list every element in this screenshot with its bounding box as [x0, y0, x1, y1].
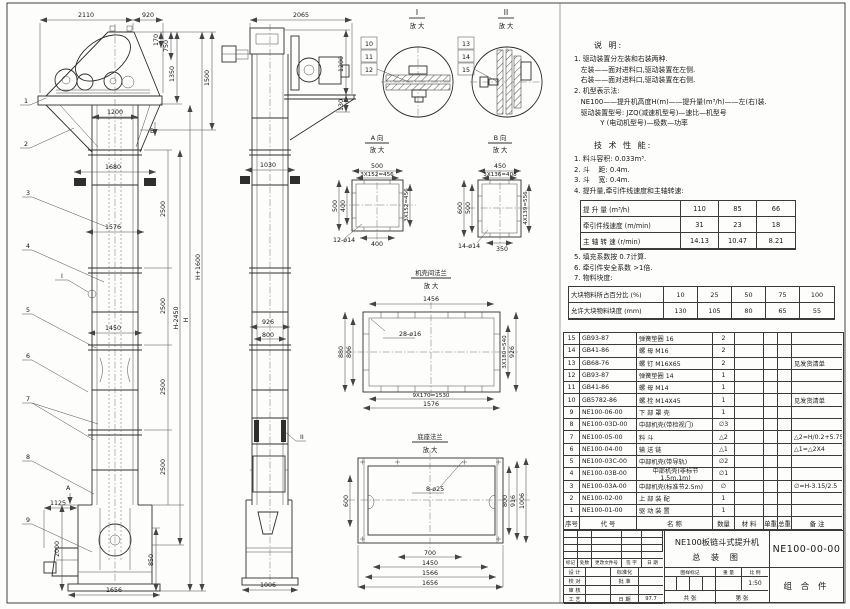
tech-items-b: 5. 填充系数按 0.7计算.6. 牵引件安全系数 >1倍.7. 物料块度: — [574, 252, 652, 284]
table-row: 11 GB41-86 螺 母 M14 1 — [564, 382, 843, 394]
holes-callout: 28-ø16 — [399, 331, 421, 338]
part-qty: 1 — [713, 505, 735, 517]
part-remark — [792, 456, 842, 468]
value-cell: 50 — [732, 287, 766, 303]
sign-value — [639, 577, 663, 586]
sheet-number: 第 张 — [716, 591, 768, 604]
part-total-weight — [778, 358, 792, 370]
tech-item: 4. 提升量,牵引件线速度和主轴转速: — [574, 186, 684, 197]
dim-label: 1500 — [204, 70, 211, 86]
sign-value — [586, 568, 611, 577]
stamp-boxes: 1:50 — [664, 577, 769, 591]
notes-section: 1. 驱动装置分左装和右装两种. 左装——面对进料口,驱动装置在左侧. 右装——… — [574, 54, 767, 129]
dim-label: 850 — [148, 554, 155, 566]
col-header: 代 号 — [580, 517, 637, 530]
part-seq: 4 — [564, 468, 580, 480]
part-material — [735, 419, 764, 431]
value-cell: 130 — [664, 303, 698, 319]
rev-col-header: 标记 — [564, 559, 578, 568]
part-seq: 12 — [564, 370, 580, 382]
part-code: GB93-87 — [580, 333, 637, 345]
value-cell: 75 — [766, 287, 800, 303]
balloon: 15 — [462, 67, 470, 74]
part-material — [735, 382, 764, 394]
tech-items-a: 1. 料斗容积: 0.033m³.2. 斗 距: 0.4m.3. 斗 宽: 0.… — [574, 154, 684, 197]
part-qty: 1 — [713, 370, 735, 382]
dim-label: 2000 — [54, 541, 61, 557]
part-seq: 2 — [564, 493, 580, 505]
note-line: NE100——提升机高度H(m)——提升量(m³/h)——左(右)装. — [574, 97, 767, 108]
col-header: 名 称 — [637, 517, 713, 530]
part-name: 弹簧垫圈 16 — [637, 333, 713, 345]
view-a: A 向 放 大 500 3X152=456 500 400 3X152=456 … — [332, 133, 416, 248]
stamp-label: 比 例 — [742, 568, 768, 577]
part-name: 中部机壳(标准节2.5m) — [637, 481, 713, 493]
tech-item: 5. 填充系数按 0.7计算. — [574, 252, 652, 263]
detail-subtitle: 放 大 — [410, 21, 425, 30]
part-total-weight — [778, 407, 792, 419]
table-row: 提 升 量 (m³/h) 110 85 66 — [581, 201, 795, 217]
dim-label: 1125 — [50, 500, 66, 507]
dim-label: 2500 — [160, 201, 167, 217]
value-cell: 105 — [698, 303, 732, 319]
dim-label: 3X136=408 — [483, 172, 517, 178]
dim-label: 4X139=556 — [523, 191, 529, 225]
row-label: 允许大块物料块度 (mm) — [569, 303, 664, 319]
note-line: 2. 机型表示法: — [574, 86, 767, 97]
dim-label: 916 — [510, 495, 517, 507]
sheet-total: 共 张 — [664, 591, 716, 604]
detail-i: I 放 大 10 11 12 — [361, 8, 455, 118]
sign-value — [586, 595, 611, 604]
part-unit-weight — [764, 456, 778, 468]
part-remark: ∅=H-3.15/2.5 — [792, 481, 842, 493]
part-total-weight — [778, 505, 792, 517]
part-qty: ∅1 — [713, 468, 735, 480]
col-header: 备 注 — [792, 517, 842, 530]
balloon: 10 — [365, 41, 373, 48]
dim-label: 2065 — [293, 12, 309, 19]
sign-label: 审 核 — [564, 586, 586, 595]
part-material — [735, 456, 764, 468]
part-code: NE100-05-00 — [580, 431, 637, 443]
part-name: 弹簧垫圈 14 — [637, 370, 713, 382]
dim-label: 1656 — [422, 580, 438, 587]
part-unit-weight — [764, 382, 778, 394]
part-qty: 2 — [713, 358, 735, 370]
dim-label: 350 — [496, 246, 508, 253]
value-cell: 110 — [681, 201, 719, 217]
row-label: 牵引件线速度 (m/min) — [581, 217, 681, 233]
part-material — [735, 370, 764, 382]
part-remark: 见发货清单 — [792, 394, 842, 406]
table-row: 7 NE100-05-00 料 斗 △2 △2=H/0.2+5.75 — [564, 431, 843, 443]
parts-rows: 15 GB93-87 弹簧垫圈 16 2 14 GB41-86 螺 母 M16 … — [564, 333, 843, 517]
part-qty: ∅3 — [713, 419, 735, 431]
sign-label: 校 对 — [564, 577, 586, 586]
drawing-number: NE100-00-00 — [769, 531, 843, 568]
sign-label: 工 艺 — [564, 595, 586, 604]
part-remark — [792, 493, 842, 505]
balloon: 6 — [26, 353, 30, 360]
part-code: NE100-03C-00 — [580, 456, 637, 468]
dim-label: 1200 — [338, 56, 345, 72]
part-remark — [792, 407, 842, 419]
col-header: 单重 — [764, 517, 778, 530]
part-qty: △2 — [713, 431, 735, 443]
part-total-weight — [778, 431, 792, 443]
sign-value — [586, 577, 611, 586]
scale-value: 1:50 — [742, 577, 768, 591]
part-code: NE100-06-00 — [580, 407, 637, 419]
base-flange-detail: 底座法兰 放 大 600 800 916 1006 700 1450 1566 … — [343, 432, 532, 587]
balloon: 2 — [24, 141, 28, 148]
value-cell: 8.21 — [757, 233, 795, 249]
sign-value — [586, 586, 611, 595]
part-qty: 1 — [713, 493, 735, 505]
note-line: 右装——面对进料口,驱动装置在右侧. — [574, 75, 767, 86]
value-cell: 14.13 — [681, 233, 719, 249]
dim-label: 800 — [502, 495, 509, 507]
col-header: 总重 — [778, 517, 792, 530]
dim-label: 806 — [346, 346, 353, 358]
sign-label: 日 期 — [611, 595, 639, 604]
balloon: 3 — [26, 190, 30, 197]
dim-label: H-2450 — [173, 306, 180, 329]
sign-label: 标准化 — [611, 568, 639, 577]
part-remark — [792, 345, 842, 357]
sign-label — [611, 586, 639, 595]
tech-item: 6. 牵引件安全系数 >1倍. — [574, 263, 652, 274]
sheet-count: 共 张 第 张 — [664, 591, 769, 604]
dim-label: 1006 — [519, 493, 526, 509]
stamp-label: 重 量 — [716, 568, 742, 577]
part-code: NE100-03D-00 — [580, 419, 637, 431]
dim-label: 3X152=456 — [360, 172, 394, 178]
part-total-weight — [778, 444, 792, 456]
part-seq: 9 — [564, 407, 580, 419]
part-total-weight — [778, 493, 792, 505]
table-row: 10 GB5782-86 螺 栓 M14X45 1 见发货清单 — [564, 394, 843, 406]
dim-label: 1450 — [105, 325, 121, 332]
dim-label: 600 — [343, 495, 350, 507]
part-material — [735, 358, 764, 370]
part-name: 下 部 罩 壳 — [637, 407, 713, 419]
table-row: 2 NE100-02-00 上 部 装 配 1 — [564, 493, 843, 505]
part-seq: 14 — [564, 345, 580, 357]
dim-label: 2500 — [160, 379, 167, 395]
row-label: 大块物料所占百分比 (%) — [569, 287, 664, 303]
part-code: NE100-02-00 — [580, 493, 637, 505]
notes-title: 说 明: — [594, 40, 623, 51]
part-remark — [792, 468, 842, 480]
table-row: 8 NE100-03D-00 中部机壳(带检视门) ∅3 — [564, 419, 843, 431]
tech-item: 7. 物料块度: — [574, 273, 652, 284]
front-view-dimensions: 2110 920 170 750 1350 1500 1200 B 1680 1… — [40, 12, 216, 595]
part-material — [735, 444, 764, 456]
balloon: 1 — [24, 98, 28, 105]
col-header: 序号 — [564, 517, 580, 530]
part-material — [735, 468, 764, 480]
detail-title: II — [504, 8, 508, 17]
dim-label: 920 — [142, 12, 154, 19]
part-remark: △1=△2X4 — [792, 444, 842, 456]
dim-label: 800 — [262, 332, 274, 339]
parts-list: 15 GB93-87 弹簧垫圈 16 2 14 GB41-86 螺 母 M16 … — [563, 332, 844, 531]
note-line: 1. 驱动装置分左装和右装两种. — [574, 54, 767, 65]
part-name: 中部机壳(带检视门) — [637, 419, 713, 431]
part-unit-weight — [764, 370, 778, 382]
dim-label: 170 — [153, 34, 160, 46]
view-subtitle: 放 大 — [370, 145, 385, 154]
note-line: Y (电动机型号)—极数—功率 — [574, 118, 767, 129]
dim-label: 880 — [338, 346, 345, 358]
part-code: GB41-86 — [580, 382, 637, 394]
rev-col-header: 日 期 — [642, 559, 663, 568]
value-cell: 55 — [800, 303, 834, 319]
dim-label: 3X152=456 — [404, 188, 410, 222]
table-row: 大块物料所占百分比 (%) 10 25 50 75 100 — [569, 287, 834, 303]
dim-label: 1030 — [260, 162, 276, 169]
dim-label: 750 — [163, 40, 170, 52]
performance-table: 提 升 量 (m³/h) 110 85 66 牵引件线速度 (m/min) 31… — [580, 200, 796, 250]
part-unit-weight — [764, 444, 778, 456]
detail-ii: II 放 大 13 14 15 — [458, 8, 544, 118]
part-unit-weight — [764, 419, 778, 431]
balloon: 14 — [462, 54, 470, 61]
holes-callout: 12-ø14 — [333, 237, 355, 244]
part-remark: 见发货清单 — [792, 358, 842, 370]
part-unit-weight — [764, 431, 778, 443]
dim-label: 2110 — [78, 12, 94, 19]
rev-col-header: 签 字 — [622, 559, 642, 568]
part-material — [735, 481, 764, 493]
side-view — [222, 24, 356, 585]
view-subtitle: 放 大 — [424, 281, 439, 290]
drawing-title: NE100板链斗式提升机 总 装 图 — [664, 531, 769, 568]
part-total-weight — [778, 419, 792, 431]
part-code: GB93-87 — [580, 370, 637, 382]
drawing-title-line2: 总 装 图 — [692, 551, 742, 563]
table-row: 15 GB93-87 弹簧垫圈 16 2 — [564, 333, 843, 345]
value-cell: 31 — [681, 217, 719, 233]
part-material — [735, 345, 764, 357]
signature-area: 设 计 标准化 校 对 批 准 审 核 — [564, 568, 664, 604]
part-total-weight — [778, 394, 792, 406]
part-qty: 2 — [713, 333, 735, 345]
revision-area: 标记 处数 更改文件号 签 字 日 期 — [564, 531, 664, 568]
part-qty: ∅2 — [713, 456, 735, 468]
part-total-weight — [778, 370, 792, 382]
tech-item: 3. 斗 宽: 0.4m. — [574, 175, 684, 186]
dim-label: 500 — [332, 200, 339, 212]
dim-label: 926 — [262, 319, 274, 326]
part-unit-weight — [764, 333, 778, 345]
dim-label: 1006 — [260, 582, 276, 589]
part-code: GB5782-86 — [580, 394, 637, 406]
dim-label: 3X180=540 — [502, 335, 508, 369]
value-cell: 25 — [698, 287, 732, 303]
rev-col-header: 处数 — [578, 559, 592, 568]
tech-title: 技 术 性 能: — [594, 140, 652, 151]
value-cell: 10 — [664, 287, 698, 303]
part-name: 螺 母 M16 — [637, 345, 713, 357]
value-cell: 66 — [757, 201, 795, 217]
part-total-weight — [778, 382, 792, 394]
stamp-label: 图样标记 — [664, 568, 716, 577]
table-row: 5 NE100-03C-00 中部机壳(带导轨) ∅2 — [564, 456, 843, 468]
part-seq: 13 — [564, 358, 580, 370]
table-row: 12 GB93-87 弹簧垫圈 14 1 — [564, 370, 843, 382]
dim-label: 450 — [494, 163, 506, 170]
part-qty: ∅ — [713, 481, 735, 493]
part-name: 中部机壳(带导轨) — [637, 456, 713, 468]
rev-col-header: 更改文件号 — [592, 559, 622, 568]
part-unit-weight — [764, 394, 778, 406]
dim-label: 1656 — [106, 587, 122, 594]
view-title: 底座法兰 — [417, 432, 442, 441]
detail-i-callout: I — [61, 273, 63, 280]
front-view-balloons: 1 2 3 4 5 6 7 8 9 — [20, 98, 107, 552]
part-code: NE100-01-00 — [580, 505, 637, 517]
drawing-title-line1: NE100板链斗式提升机 — [675, 536, 759, 548]
stamp-header: 图样标记 重 量 比 例 — [664, 568, 769, 577]
dim-label: 1576 — [423, 401, 439, 408]
table-row: 4 NE100-03B-00 中部机壳(非标节1.5m,1m) ∅1 — [564, 468, 843, 480]
part-total-weight — [778, 481, 792, 493]
value-cell: 18 — [757, 217, 795, 233]
detail-ii-callout: II — [300, 434, 304, 441]
part-material — [735, 407, 764, 419]
view-title: 机壳间法兰 — [415, 268, 446, 277]
tech-item: 2. 斗 距: 0.4m. — [574, 165, 684, 176]
table-row: 6 NE100-04-00 输 送 链 △1 △1=△2X4 — [564, 444, 843, 456]
part-code: GB41-86 — [580, 345, 637, 357]
value-cell: 100 — [800, 287, 834, 303]
signature-row: 设 计 标准化 — [564, 568, 664, 577]
title-block: 标记 处数 更改文件号 签 字 日 期 设 计 标准化 校 对 — [563, 530, 844, 603]
value-cell: 85 — [719, 201, 757, 217]
value-cell: 65 — [766, 303, 800, 319]
part-remark — [792, 382, 842, 394]
note-line: 左装——面对进料口,驱动装置在左侧. — [574, 65, 767, 76]
signature-row: 审 核 — [564, 586, 664, 595]
part-code: NE100-03A-00 — [580, 481, 637, 493]
dim-label: 1450 — [422, 560, 438, 567]
part-qty: 2 — [713, 345, 735, 357]
view-title: A 向 — [371, 133, 384, 142]
part-name: 上 部 装 配 — [637, 493, 713, 505]
part-seq: 6 — [564, 444, 580, 456]
view-a-arrow-label: A — [66, 485, 71, 492]
part-material — [735, 431, 764, 443]
part-code: GB68-76 — [580, 358, 637, 370]
holes-callout: 8-ø25 — [426, 486, 444, 493]
value-cell: 23 — [719, 217, 757, 233]
part-material — [735, 333, 764, 345]
value-cell: 80 — [732, 303, 766, 319]
balloon: 8 — [26, 454, 30, 461]
dim-label: 600 — [457, 202, 464, 214]
dim-label: H — [183, 317, 190, 322]
part-unit-weight — [764, 407, 778, 419]
balloon: 12 — [365, 67, 373, 74]
part-code: NE100-03B-00 — [580, 468, 637, 480]
table-row: 13 GB68-76 螺 钉 M16X65 2 见发货清单 — [564, 358, 843, 370]
table-row: 1 NE100-01-00 驱 动 装 置 1 — [564, 505, 843, 517]
part-unit-weight — [764, 505, 778, 517]
balloon: 4 — [26, 243, 30, 250]
dim-label: 1200 — [107, 109, 123, 116]
part-name: 中部机壳(非标节1.5m,1m) — [637, 468, 713, 480]
value-cell: 10.47 — [719, 233, 757, 249]
part-remark: △2=H/0.2+5.75 — [792, 431, 842, 443]
part-kind: 组 合 件 — [769, 568, 843, 603]
table-row: 主 轴 转 速 (r/min) 14.13 10.47 8.21 — [581, 233, 795, 249]
sign-value — [639, 586, 663, 595]
sign-label: 设 计 — [564, 568, 586, 577]
col-header: 数量 — [713, 517, 735, 530]
part-seq: 7 — [564, 431, 580, 443]
part-qty: 1 — [713, 382, 735, 394]
part-seq: 8 — [564, 419, 580, 431]
part-unit-weight — [764, 345, 778, 357]
holes-callout: 14-ø14 — [458, 243, 480, 250]
view-b-arrow-label: B — [150, 128, 154, 135]
table-row: 9 NE100-06-00 下 部 罩 壳 1 — [564, 407, 843, 419]
view-subtitle: 放 大 — [493, 145, 508, 154]
right-panel: 说 明: 1. 驱动装置分左装和右装两种. 左装——面对进料口,驱动装置在左侧.… — [560, 0, 845, 609]
tech-item: 1. 料斗容积: 0.033m³. — [574, 154, 684, 165]
table-row: 允许大块物料块度 (mm) 130 105 80 65 55 — [569, 303, 834, 319]
part-unit-weight — [764, 358, 778, 370]
view-title: B 向 — [494, 133, 507, 142]
dim-label: 500 — [465, 202, 472, 214]
part-code: NE100-04-00 — [580, 444, 637, 456]
dim-label: 2500 — [160, 298, 167, 314]
part-remark — [792, 333, 842, 345]
drawing-sheet: { "front_view": { "balloons": ["1","2","… — [0, 0, 850, 609]
dim-label: 9X170=1530 — [413, 393, 450, 399]
dim-label: 1576 — [105, 224, 121, 231]
part-seq: 15 — [564, 333, 580, 345]
part-remark — [792, 419, 842, 431]
part-name: 螺 母 M14 — [637, 382, 713, 394]
part-qty: △1 — [713, 444, 735, 456]
table-row: 3 NE100-03A-00 中部机壳(标准节2.5m) ∅ ∅=H-3.15/… — [564, 481, 843, 493]
part-name: 输 送 链 — [637, 444, 713, 456]
dim-label: 130 — [338, 99, 345, 111]
detail-subtitle: 放 大 — [499, 21, 514, 30]
dim-label: 500 — [371, 163, 383, 170]
view-b: B 向 放 大 450 3X136=408 600 500 4X139=556 … — [457, 133, 530, 253]
balloon: 13 — [462, 41, 470, 48]
part-remark — [792, 505, 842, 517]
sign-value: 97.7 — [639, 595, 663, 604]
part-qty: 1 — [713, 407, 735, 419]
dim-label: H+1600 — [195, 254, 202, 280]
part-seq: 10 — [564, 394, 580, 406]
part-material — [735, 505, 764, 517]
parts-header-row: 序号 代 号 名 称 数量 材 料 单重 总重 备 注 — [564, 517, 843, 530]
dim-label: 1680 — [105, 164, 121, 171]
dim-label: 1350 — [169, 66, 176, 82]
balloon: 5 — [26, 307, 30, 314]
table-row: 牵引件线速度 (m/min) 31 23 18 — [581, 217, 795, 233]
col-header: 材 料 — [735, 517, 764, 530]
signature-row: 工 艺 日 期 97.7 — [564, 595, 664, 604]
balloon: 9 — [26, 517, 30, 524]
